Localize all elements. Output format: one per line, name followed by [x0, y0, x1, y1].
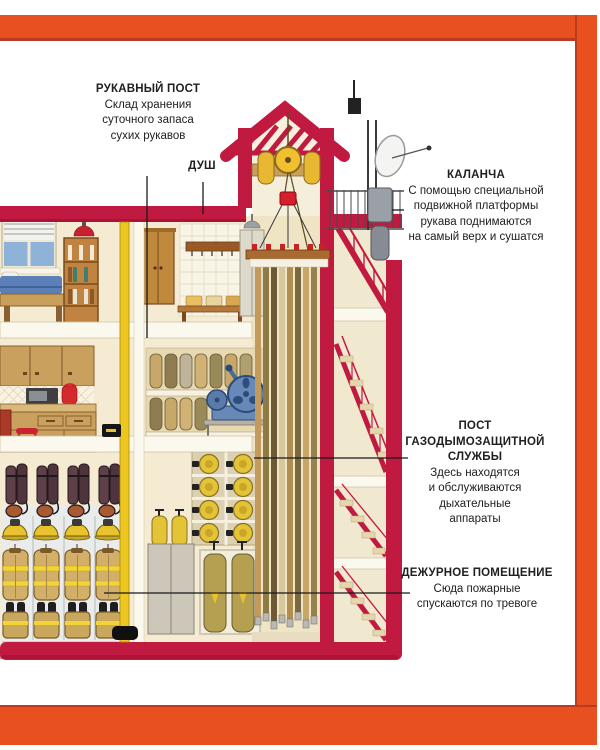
annotation-body: С помощью специальной подвижной платформ… [400, 184, 552, 246]
annotation-title: ДУШ [168, 159, 236, 175]
kettle-icon [62, 384, 77, 404]
annotation-body: Здесь находятся и обслуживаются дыхатель… [400, 466, 550, 528]
annotation-body: Сюда пожарные спускаются по тревоге [398, 582, 556, 613]
annotation-watchtower: КАЛАНЧА С помощью специальной подвижной … [400, 168, 552, 246]
annotation-title: РУКАВНЫЙ ПОСТ [70, 82, 226, 98]
annotation-smoke-protection-post: ПОСТ ГАЗОДЫМОЗАЩИТНОЙ СЛУЖБЫ Здесь наход… [400, 419, 550, 528]
moving-platform-icon [280, 192, 296, 205]
annotation-title: ДЕЖУРНОЕ ПОМЕЩЕНИЕ [398, 566, 556, 582]
annotation-duty-room: ДЕЖУРНОЕ ПОМЕЩЕНИЕ Сюда пожарные спускаю… [398, 566, 556, 613]
annotation-title: КАЛАНЧА [400, 168, 552, 184]
annotation-shower: ДУШ [168, 159, 236, 175]
annotation-hose-post: РУКАВНЫЙ ПОСТ Склад хранения суточного з… [70, 82, 226, 144]
annotation-title: ПОСТ ГАЗОДЫМОЗАЩИТНОЙ СЛУЖБЫ [400, 419, 550, 466]
hose-storage-room [146, 348, 264, 444]
oxygen-cylinder-rack [192, 452, 260, 545]
annotation-body: Склад хранения суточного запаса сухих ру… [70, 98, 226, 145]
wall-clock-icon [102, 424, 121, 437]
antenna-box-icon [368, 188, 392, 222]
book-page: { "colors": { "frame_orange": "#E8501F",… [0, 0, 600, 750]
